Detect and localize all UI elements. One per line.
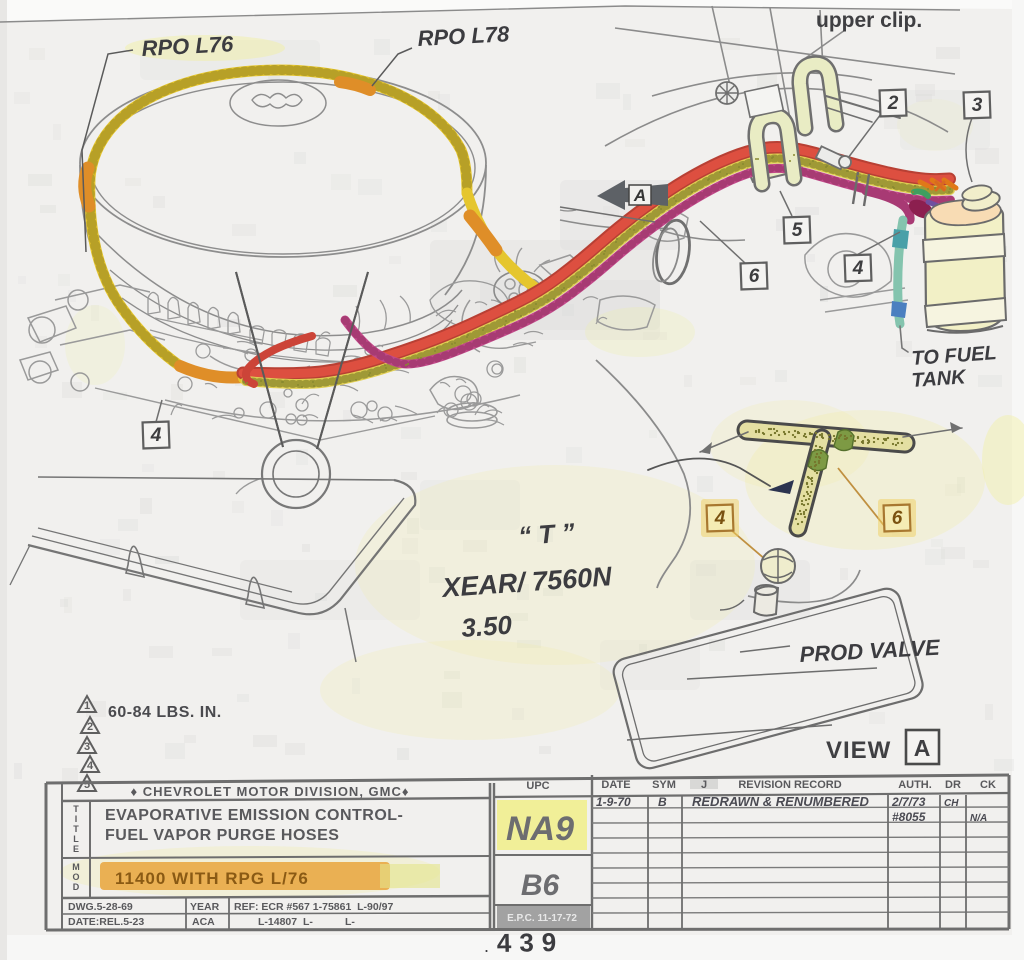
svg-text:NA9: NA9 — [506, 810, 574, 848]
svg-text:upper clip.: upper clip. — [816, 9, 922, 32]
svg-text:N/A: N/A — [970, 813, 987, 824]
svg-text:T: T — [73, 804, 79, 814]
svg-text:I: I — [75, 814, 78, 824]
svg-text:3: 3 — [84, 741, 90, 753]
svg-text:4: 4 — [714, 508, 726, 529]
svg-text:A: A — [633, 186, 646, 205]
svg-text:6: 6 — [892, 508, 903, 529]
svg-text:M: M — [72, 862, 80, 872]
svg-text:REDRAWN & RENUMBERED: REDRAWN & RENUMBERED — [692, 794, 870, 809]
svg-text:ACA: ACA — [192, 916, 215, 928]
svg-text:AUTH.: AUTH. — [898, 779, 932, 791]
svg-text:1: 1 — [84, 700, 90, 712]
svg-text:RPO L78: RPO L78 — [417, 21, 511, 51]
svg-text:3: 3 — [972, 95, 983, 116]
svg-text:.: . — [484, 936, 489, 956]
svg-text:D: D — [73, 882, 80, 892]
svg-text:3.50: 3.50 — [460, 609, 513, 642]
svg-text:4: 4 — [87, 760, 94, 772]
svg-text:REVISION RECORD: REVISION RECORD — [738, 779, 841, 791]
svg-text:REF: ECR #567 1-75861 L-90/97: REF: ECR #567 1-75861 L-90/97 — [234, 901, 393, 913]
svg-text:B6: B6 — [521, 869, 560, 902]
svg-text:DR: DR — [945, 779, 961, 791]
svg-text:1-9-70: 1-9-70 — [596, 795, 631, 809]
svg-text:O: O — [72, 872, 79, 882]
svg-text:CH: CH — [944, 798, 959, 809]
svg-text:EVAPORATIVE EMISSION CONTROL-: EVAPORATIVE EMISSION CONTROL- — [105, 807, 403, 824]
svg-text:2: 2 — [87, 721, 93, 733]
svg-text:UPC: UPC — [526, 780, 549, 792]
svg-text:T: T — [73, 824, 79, 834]
svg-text:60-84 LBS. IN.: 60-84 LBS. IN. — [108, 704, 222, 721]
svg-text:2/7/73: 2/7/73 — [891, 795, 926, 809]
svg-text:B: B — [658, 795, 667, 809]
svg-text:11400 WITH RPG L/76: 11400 WITH RPG L/76 — [115, 869, 309, 888]
svg-text:439: 439 — [497, 927, 565, 958]
svg-text:YEAR: YEAR — [190, 901, 220, 913]
svg-text:4: 4 — [150, 425, 162, 446]
svg-text:E.P.C. 11-17-72: E.P.C. 11-17-72 — [507, 913, 577, 924]
svg-text:VIEW: VIEW — [826, 737, 891, 764]
svg-text:6: 6 — [749, 266, 760, 287]
svg-text:SYM: SYM — [652, 779, 676, 791]
svg-text:2: 2 — [887, 93, 899, 114]
svg-text:J: J — [701, 779, 707, 791]
svg-text:“ T ”: “ T ” — [517, 517, 575, 551]
svg-text:#8055: #8055 — [892, 810, 926, 824]
svg-text:RPO L76: RPO L76 — [141, 31, 235, 61]
svg-text:♦ CHEVROLET MOTOR DIVISION, GM: ♦ CHEVROLET MOTOR DIVISION, GMC♦ — [130, 784, 409, 799]
svg-text:L: L — [73, 834, 79, 844]
svg-text:5: 5 — [792, 220, 803, 241]
svg-text:DWG.5-28-69: DWG.5-28-69 — [68, 901, 133, 913]
svg-text:A: A — [914, 735, 931, 761]
svg-text:FUEL VAPOR PURGE HOSES: FUEL VAPOR PURGE HOSES — [105, 827, 339, 844]
svg-text:4: 4 — [852, 258, 864, 279]
svg-text:E: E — [73, 844, 79, 854]
svg-text:L-14807 L- L-: L-14807 L- L- — [258, 916, 355, 928]
svg-text:DATE:REL.5-23: DATE:REL.5-23 — [68, 916, 144, 928]
svg-text:DATE: DATE — [601, 779, 630, 791]
svg-text:TANK: TANK — [911, 366, 968, 392]
svg-text:CK: CK — [980, 779, 996, 791]
svg-text:5: 5 — [84, 779, 90, 791]
